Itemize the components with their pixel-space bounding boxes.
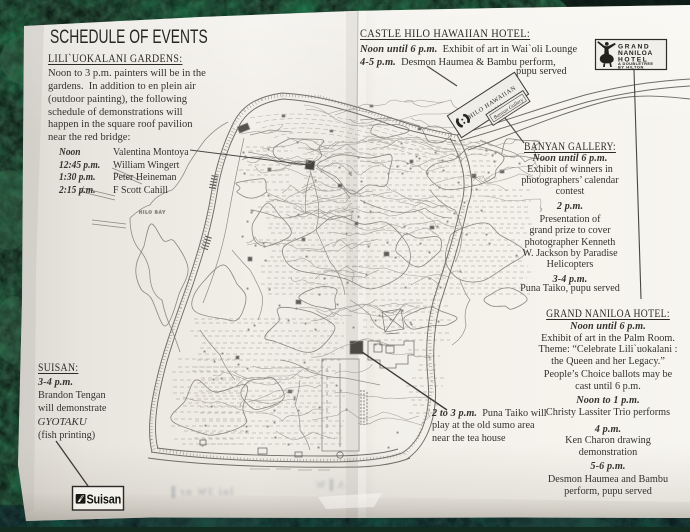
svg-text:BY HILTON: BY HILTON	[618, 65, 644, 70]
svg-text:HILO BAY: HILO BAY	[139, 210, 166, 215]
svg-text:Suisan: Suisan	[87, 493, 122, 507]
